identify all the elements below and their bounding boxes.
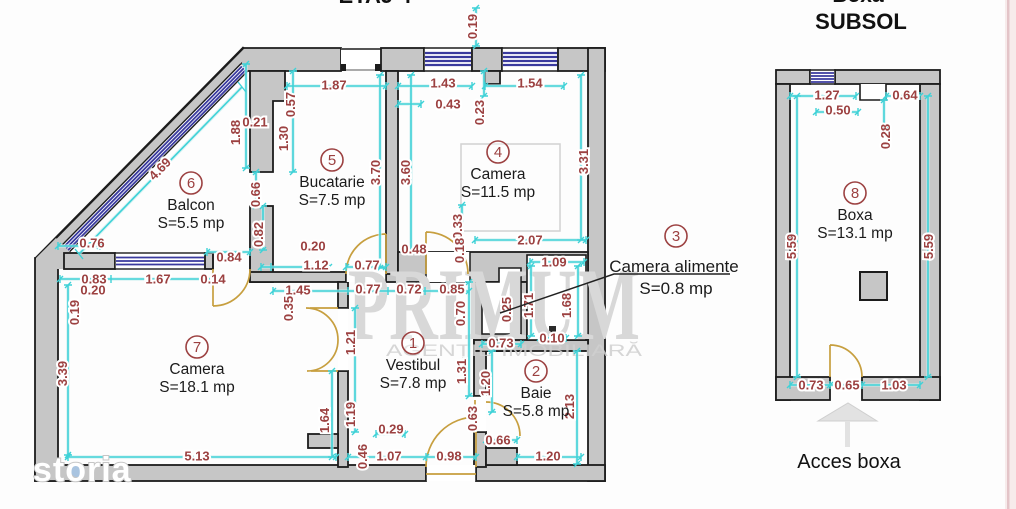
svg-text:2: 2 <box>532 363 540 380</box>
svg-text:3.39: 3.39 <box>55 361 70 386</box>
svg-text:1.68: 1.68 <box>559 293 574 318</box>
svg-text:0.29: 0.29 <box>378 422 403 437</box>
svg-text:0.66: 0.66 <box>248 182 263 207</box>
svg-text:0.77: 0.77 <box>355 282 380 297</box>
svg-text:0.73: 0.73 <box>488 336 513 351</box>
svg-text:S=0.8 mp: S=0.8 mp <box>639 279 712 298</box>
svg-text:0.98: 0.98 <box>436 449 461 464</box>
svg-text:Camera alimente: Camera alimente <box>609 257 738 276</box>
svg-text:0.14: 0.14 <box>200 272 226 287</box>
svg-text:5.13: 5.13 <box>184 449 209 464</box>
svg-text:S=7.5 mp: S=7.5 mp <box>299 192 366 209</box>
svg-text:0.63: 0.63 <box>465 406 480 431</box>
svg-text:5: 5 <box>328 152 336 169</box>
svg-text:0.77: 0.77 <box>354 258 379 273</box>
svg-text:0.21: 0.21 <box>242 115 267 130</box>
svg-text:0.66: 0.66 <box>485 433 510 448</box>
svg-text:S=5.5 mp: S=5.5 mp <box>158 215 225 232</box>
svg-text:0.43: 0.43 <box>435 97 460 112</box>
svg-text:2.07: 2.07 <box>517 233 542 248</box>
svg-text:Acces boxa: Acces boxa <box>797 451 901 473</box>
svg-text:1.09: 1.09 <box>541 255 566 270</box>
svg-text:1.19: 1.19 <box>343 402 358 427</box>
svg-text:0.76: 0.76 <box>79 236 104 251</box>
svg-text:1.88: 1.88 <box>228 120 243 145</box>
svg-text:1.54: 1.54 <box>517 76 543 91</box>
svg-text:1.67: 1.67 <box>145 272 170 287</box>
svg-text:0.19: 0.19 <box>465 14 480 39</box>
svg-text:Boxa: Boxa <box>832 0 884 7</box>
svg-text:1.20: 1.20 <box>478 371 493 396</box>
svg-text:Baie: Baie <box>520 385 551 402</box>
svg-text:S=5.8 mp: S=5.8 mp <box>503 403 570 420</box>
svg-text:0.28: 0.28 <box>878 124 893 149</box>
svg-text:1.07: 1.07 <box>376 449 401 464</box>
svg-text:S=7.8 mp: S=7.8 mp <box>380 375 447 392</box>
svg-text:0.82: 0.82 <box>251 222 266 247</box>
svg-text:1.21: 1.21 <box>343 330 358 355</box>
svg-text:0.20: 0.20 <box>80 283 105 298</box>
svg-text:S=18.1 mp: S=18.1 mp <box>159 379 234 396</box>
svg-text:0.18: 0.18 <box>452 238 467 263</box>
svg-text:1.31: 1.31 <box>454 359 469 384</box>
svg-text:0.46: 0.46 <box>355 444 370 469</box>
svg-text:Vestibul: Vestibul <box>386 357 440 374</box>
svg-text:Camera: Camera <box>169 361 225 378</box>
svg-text:0.50: 0.50 <box>825 103 850 118</box>
svg-text:1.64: 1.64 <box>317 407 332 433</box>
svg-text:0.85: 0.85 <box>439 282 464 297</box>
svg-text:0.64: 0.64 <box>892 88 918 103</box>
svg-text:Camera: Camera <box>470 166 526 183</box>
svg-text:3.60: 3.60 <box>398 160 413 185</box>
svg-text:1.20: 1.20 <box>535 449 560 464</box>
svg-text:1.87: 1.87 <box>321 78 346 93</box>
svg-text:S=13.1 mp: S=13.1 mp <box>817 225 892 242</box>
svg-text:0.72: 0.72 <box>396 282 421 297</box>
svg-text:0.10: 0.10 <box>539 331 564 346</box>
svg-text:7: 7 <box>193 339 201 356</box>
svg-text:0.19: 0.19 <box>67 300 82 325</box>
svg-text:3.70: 3.70 <box>368 160 383 185</box>
svg-text:1.03: 1.03 <box>881 378 906 393</box>
svg-text:0.84: 0.84 <box>216 250 242 265</box>
svg-text:5.59: 5.59 <box>921 234 936 259</box>
svg-text:storia: storia <box>33 451 132 489</box>
svg-text:3: 3 <box>672 228 680 245</box>
svg-text:0.73: 0.73 <box>798 378 823 393</box>
svg-text:1.30: 1.30 <box>276 126 291 151</box>
svg-text:1: 1 <box>409 335 417 352</box>
svg-text:Bucatarie: Bucatarie <box>299 174 364 191</box>
svg-text:SUBSOL: SUBSOL <box>815 9 907 34</box>
svg-text:4: 4 <box>494 144 502 161</box>
svg-text:8: 8 <box>851 185 859 202</box>
svg-text:6: 6 <box>187 175 195 192</box>
svg-text:S=11.5 mp: S=11.5 mp <box>461 184 535 201</box>
svg-text:0.70: 0.70 <box>453 301 468 326</box>
svg-text:0.23: 0.23 <box>472 100 487 125</box>
svg-text:1.12: 1.12 <box>303 258 328 273</box>
svg-text:5.59: 5.59 <box>784 234 799 259</box>
svg-text:1.43: 1.43 <box>430 76 455 91</box>
svg-text:0.65: 0.65 <box>834 378 859 393</box>
svg-text:0.33: 0.33 <box>450 214 465 239</box>
svg-text:Balcon: Balcon <box>167 197 214 214</box>
svg-text:3.31: 3.31 <box>576 149 591 174</box>
svg-text:0.57: 0.57 <box>283 92 298 117</box>
svg-text:1.27: 1.27 <box>814 88 839 103</box>
svg-text:0.48: 0.48 <box>401 242 426 257</box>
svg-text:Boxa: Boxa <box>837 207 873 224</box>
svg-text:ETAJ 4: ETAJ 4 <box>339 0 413 8</box>
svg-text:1.45: 1.45 <box>285 283 310 298</box>
svg-text:0.35: 0.35 <box>281 296 296 321</box>
svg-text:0.20: 0.20 <box>300 239 325 254</box>
